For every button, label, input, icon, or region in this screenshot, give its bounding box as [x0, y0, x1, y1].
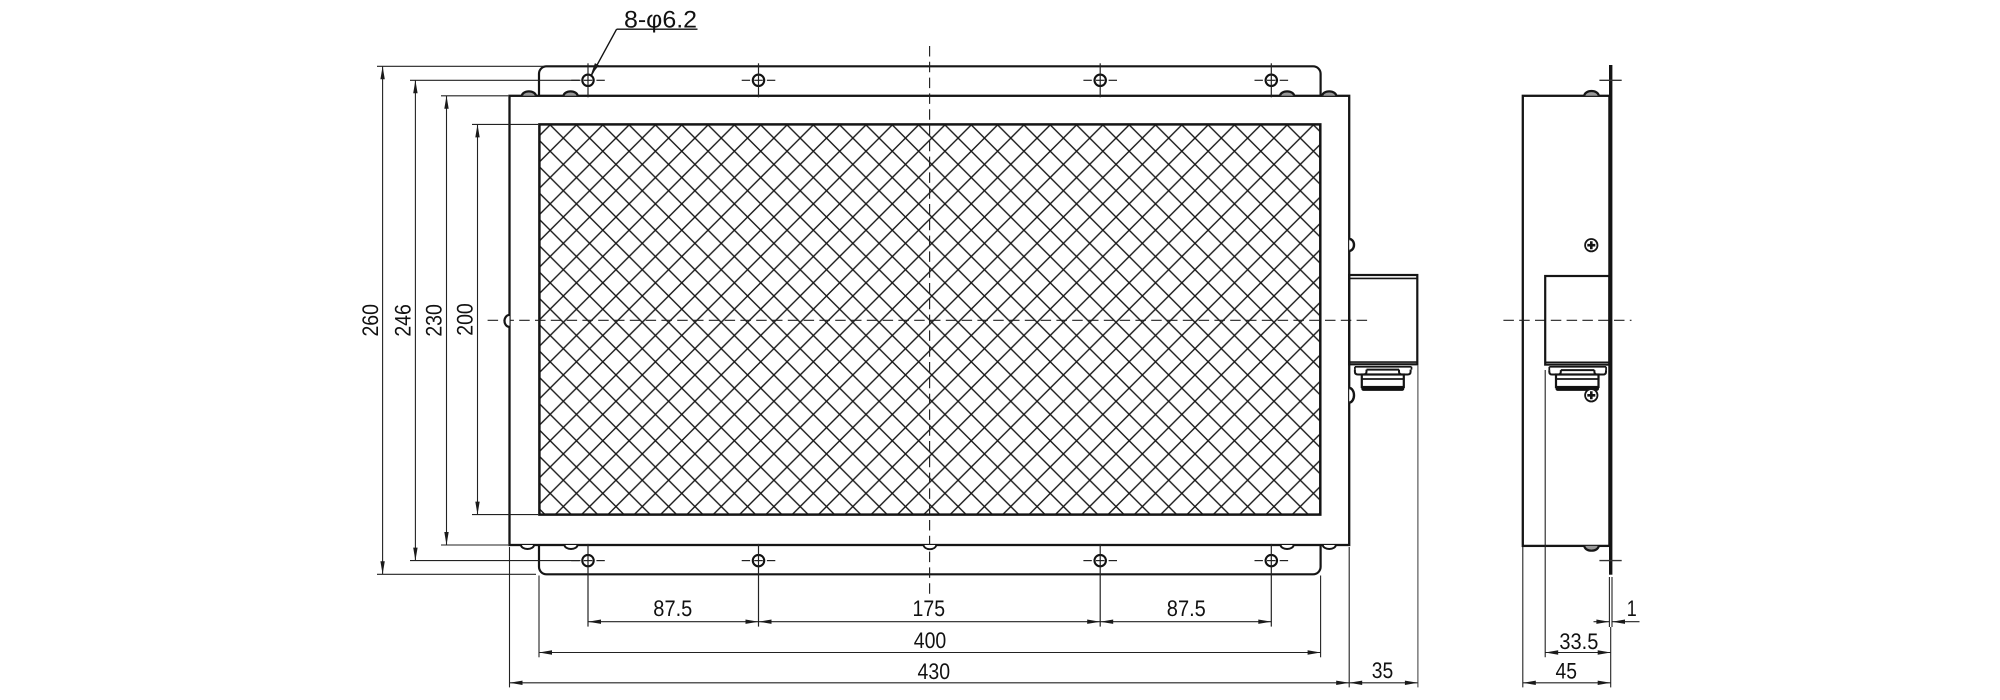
svg-text:400: 400 [914, 628, 947, 653]
svg-text:430: 430 [918, 659, 951, 684]
svg-text:35: 35 [1372, 658, 1394, 683]
svg-text:45: 45 [1556, 659, 1578, 684]
svg-text:33.5: 33.5 [1559, 629, 1598, 654]
svg-text:1: 1 [1627, 596, 1637, 621]
svg-text:260: 260 [358, 304, 383, 337]
svg-text:87.5: 87.5 [653, 596, 692, 621]
svg-text:8-φ6.2: 8-φ6.2 [624, 7, 697, 34]
svg-text:87.5: 87.5 [1167, 596, 1206, 621]
svg-text:246: 246 [391, 304, 416, 337]
svg-text:200: 200 [453, 303, 478, 336]
svg-text:230: 230 [422, 304, 447, 337]
svg-text:175: 175 [913, 596, 946, 621]
